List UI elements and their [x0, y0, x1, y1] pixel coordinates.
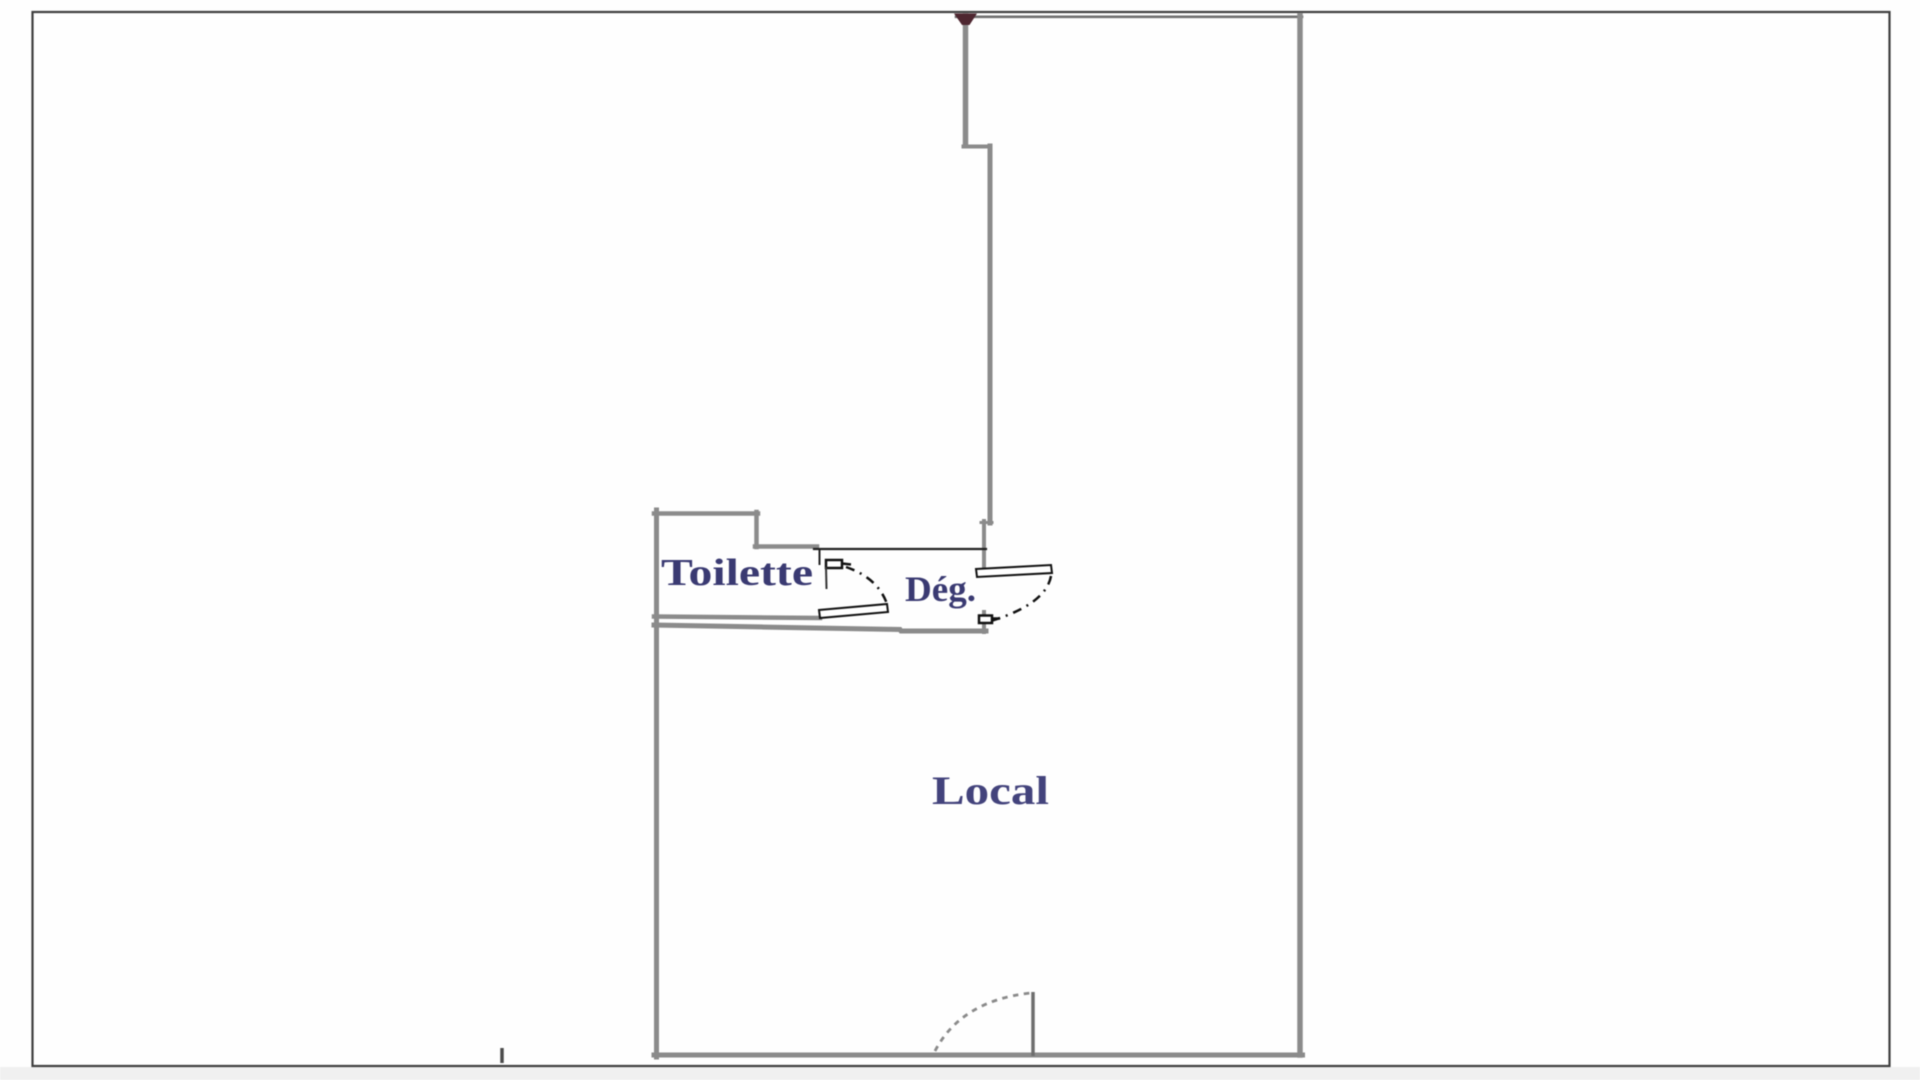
svg-text:Dég.: Dég. [905, 569, 976, 609]
svg-text:Local: Local [932, 768, 1049, 813]
svg-text:Toilette: Toilette [661, 552, 813, 594]
